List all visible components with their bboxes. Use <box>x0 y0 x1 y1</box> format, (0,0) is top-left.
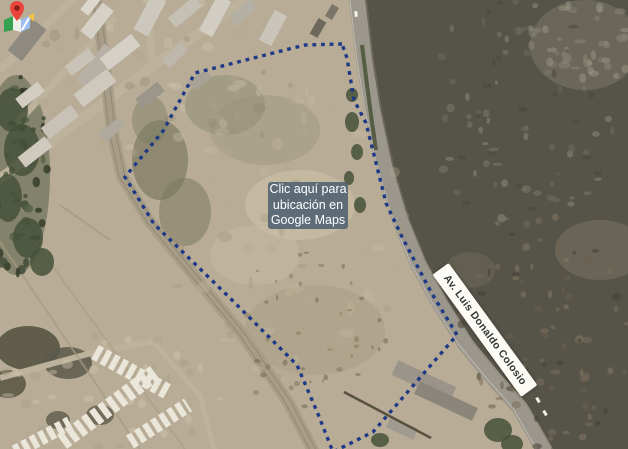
cta-line-2: ubicación en <box>273 198 343 214</box>
google-maps-pin-icon[interactable] <box>0 0 34 35</box>
cta-line-3: Google Maps <box>271 213 345 229</box>
satellite-map-view: Clic aquí para ubicación en Google Maps … <box>0 0 628 449</box>
google-maps-cta[interactable]: Clic aquí para ubicación en Google Maps <box>268 182 348 229</box>
cta-line-1: Clic aquí para <box>269 182 346 198</box>
